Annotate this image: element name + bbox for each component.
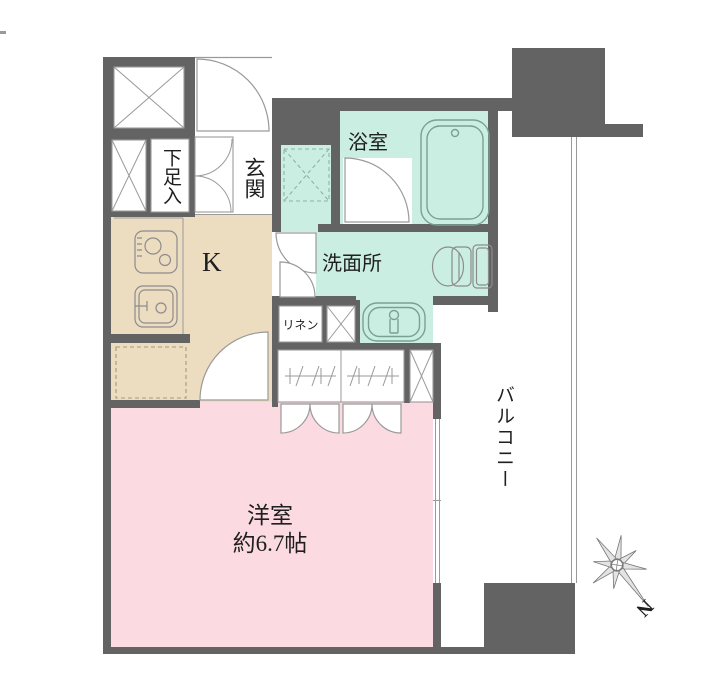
label-western-room: 洋室 約6.7帖 bbox=[175, 502, 365, 558]
label-balcony: バルコニー bbox=[489, 372, 517, 502]
stray-mark bbox=[0, 31, 6, 34]
label-bathroom: 浴室 bbox=[348, 126, 424, 155]
label-linen: リネン bbox=[279, 316, 322, 333]
pillar-bottom bbox=[484, 583, 575, 654]
western-room-name: 洋室 bbox=[175, 502, 365, 530]
floor-plan-drawing bbox=[0, 0, 703, 697]
pillar bbox=[512, 48, 605, 137]
label-entrance: 玄関 bbox=[238, 149, 270, 207]
label-kitchen: K bbox=[202, 247, 222, 278]
label-shoe-cabinet: 下足入 bbox=[155, 141, 186, 211]
floor-plan: 下足入 玄関 K 浴室 洗面所 リネン 洋室 約6.7帖 バルコニー N bbox=[0, 0, 703, 697]
label-washroom: 洗面所 bbox=[322, 247, 422, 276]
compass-icon bbox=[588, 532, 658, 607]
laundry-space-floor bbox=[277, 140, 334, 232]
window bbox=[433, 419, 441, 583]
shoe-cabinet-doors bbox=[195, 137, 233, 212]
basin-alcove-floor bbox=[356, 296, 433, 348]
balcony-railing bbox=[572, 137, 577, 583]
western-room-size: 約6.7帖 bbox=[175, 530, 365, 558]
